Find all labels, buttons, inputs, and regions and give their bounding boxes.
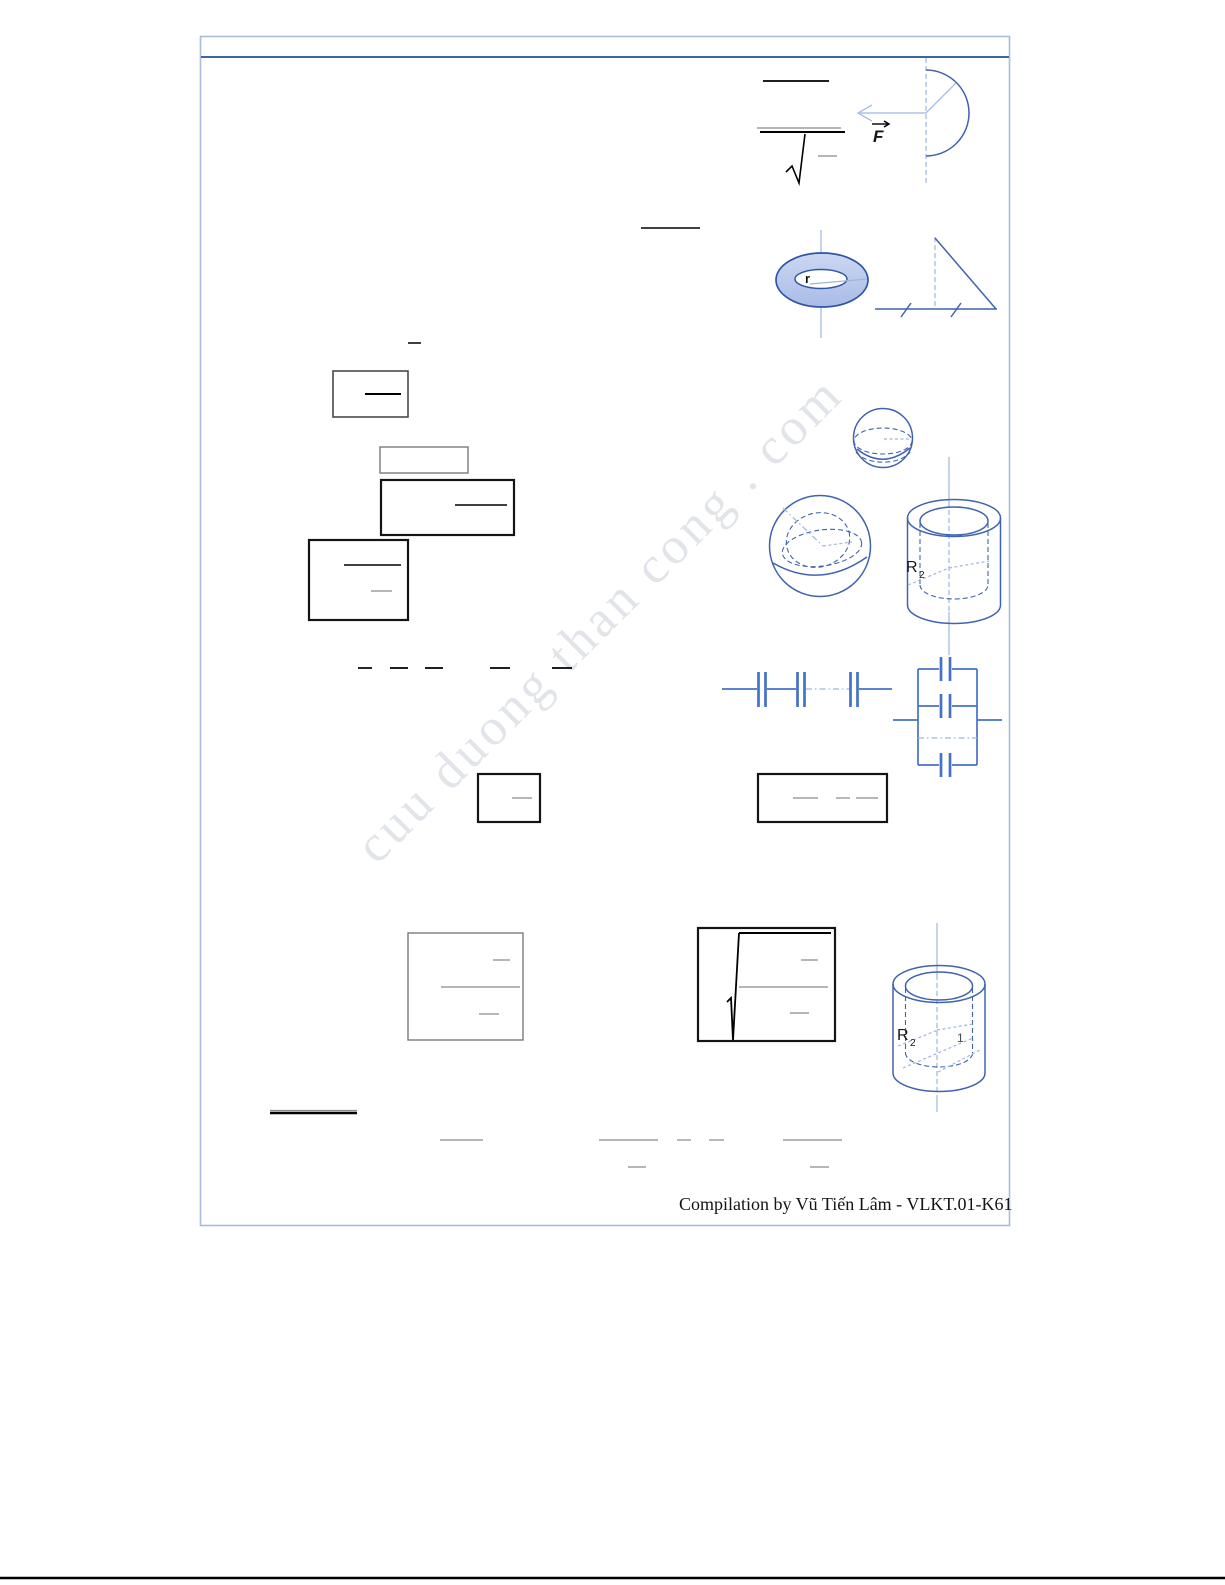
- formula-box-2: [380, 447, 468, 473]
- formula-box-1: [333, 371, 408, 417]
- cylinder-top-radius-label: R: [906, 559, 918, 576]
- series-capacitors-figure: [722, 672, 892, 707]
- force-semicircle-figure: F: [858, 58, 969, 185]
- force-label: F: [872, 121, 889, 146]
- footer-credit: Compilation by Vũ Tiến Lâm - VLKT.01-K61: [679, 1194, 1013, 1215]
- document-page: cuu duong than cong . com F: [0, 0, 1225, 1585]
- force-label-text: F: [873, 127, 884, 146]
- fraction-formula-remnant: [757, 81, 845, 183]
- formula-box-3: [381, 480, 514, 535]
- graph-box-left: [408, 933, 523, 1040]
- cylinder-bottom-inner-mark: 1: [957, 1031, 964, 1045]
- bottom-formula-remnants: [440, 1140, 842, 1167]
- formula-box-6: [758, 774, 887, 822]
- cylinder-bottom-radius-label: R: [897, 1027, 909, 1044]
- parallel-capacitors-figure: [893, 657, 1002, 777]
- formula-box-4: [309, 540, 408, 620]
- formula-box-5: [478, 774, 540, 822]
- cylinder-bottom-radius-subscript: 2: [910, 1038, 916, 1049]
- torus-figure: r: [776, 230, 868, 338]
- underline-remnant: [270, 1111, 357, 1114]
- hollow-cylinder-figure-bottom: R 2 1: [893, 923, 985, 1112]
- page-border: [201, 37, 1010, 1226]
- nested-spheres-figure: [770, 496, 871, 597]
- torus-radius-label: r: [805, 271, 810, 286]
- sqrt-formula-box: [698, 928, 835, 1041]
- hollow-cylinder-figure-top: R 2: [906, 457, 1001, 655]
- page-drawing-layer: F r: [0, 0, 1225, 1585]
- triangle-figure: [875, 237, 997, 317]
- cylinder-top-radius-subscript: 2: [919, 570, 925, 581]
- sphere-figure: [854, 409, 913, 468]
